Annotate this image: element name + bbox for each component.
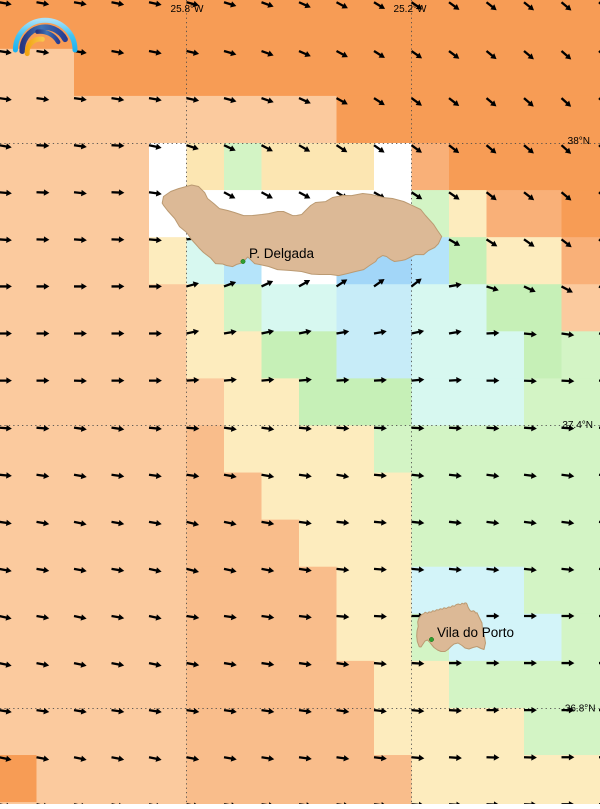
svg-text:25.2°W: 25.2°W <box>394 4 427 15</box>
svg-text:Vila do Porto: Vila do Porto <box>437 625 514 640</box>
svg-text:38°N: 38°N <box>568 136 590 147</box>
svg-text:37.4°N: 37.4°N <box>562 420 593 431</box>
svg-text:P. Delgada: P. Delgada <box>249 246 315 261</box>
svg-text:25.8°W: 25.8°W <box>171 4 204 15</box>
svg-text:36.8°N: 36.8°N <box>565 704 596 715</box>
